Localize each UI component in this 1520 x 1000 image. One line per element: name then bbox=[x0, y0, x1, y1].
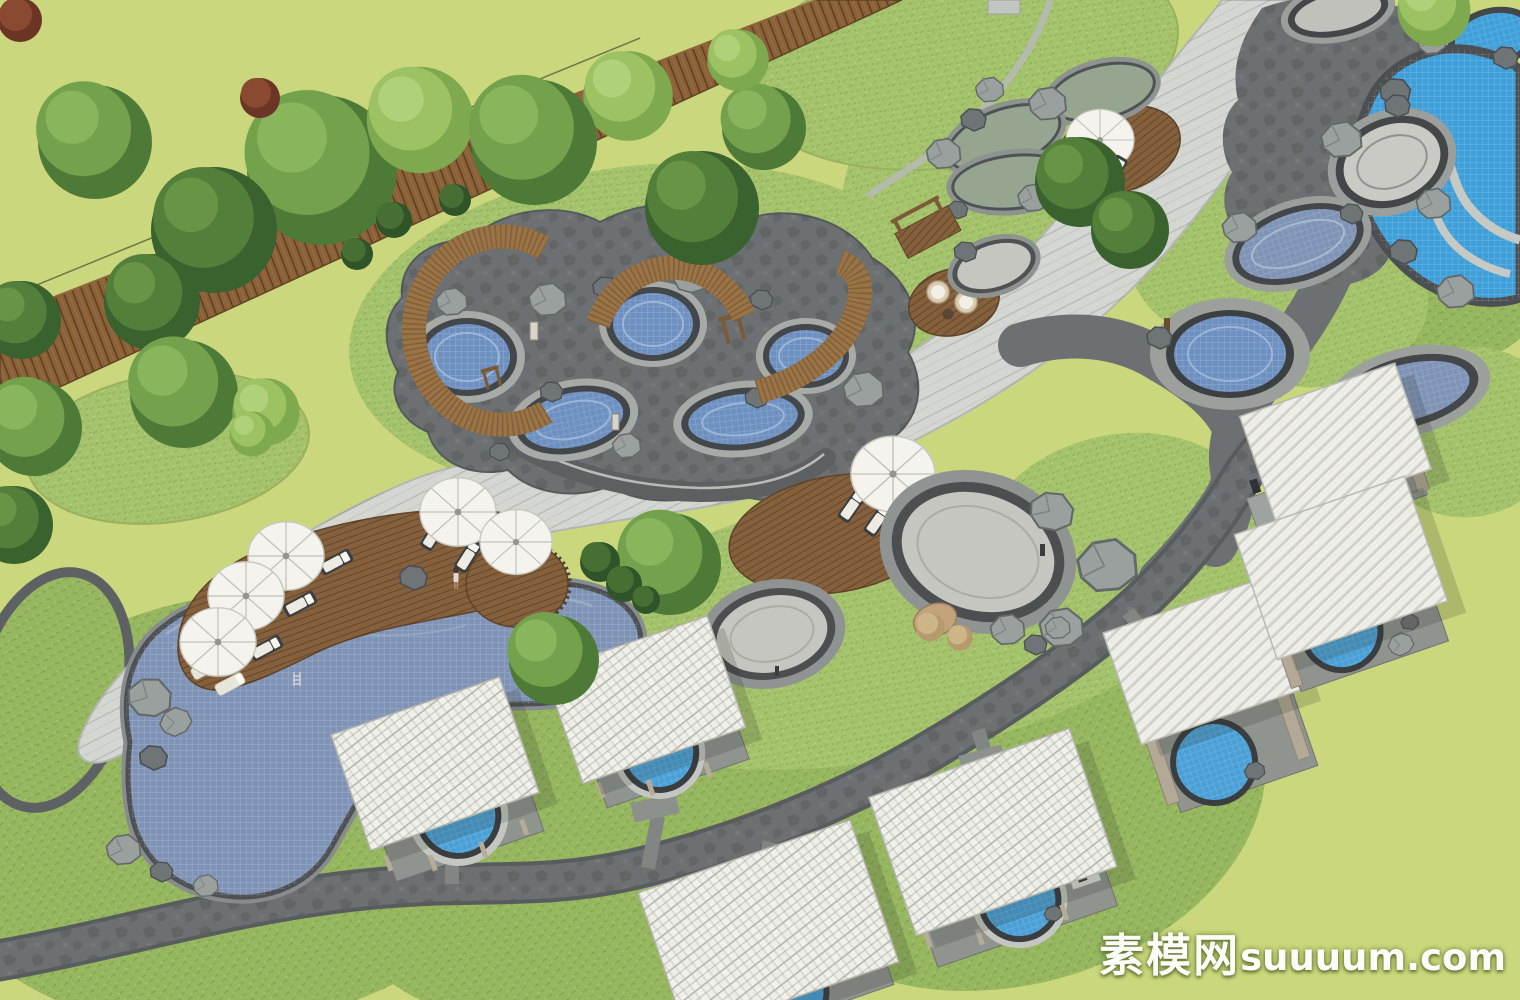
resort-aerial-render bbox=[0, 0, 1520, 1000]
patio-umbrella bbox=[480, 510, 552, 575]
watermark-cn: 素模网 bbox=[1099, 933, 1240, 978]
round-pool bbox=[1150, 298, 1310, 410]
lamp-post bbox=[1040, 544, 1045, 556]
tree bbox=[1091, 191, 1169, 269]
shrub bbox=[230, 412, 275, 457]
shrub bbox=[376, 202, 412, 238]
lamp-post bbox=[775, 666, 779, 676]
dry-shrub bbox=[916, 613, 945, 642]
tree bbox=[645, 151, 759, 265]
platform-pad bbox=[988, 0, 1020, 14]
shrub bbox=[341, 238, 373, 270]
shrub bbox=[439, 184, 471, 216]
screenshot-root: 素模网suuuum.com bbox=[0, 0, 1520, 1000]
watermark: 素模网suuuum.com bbox=[1099, 933, 1506, 978]
tree bbox=[707, 29, 769, 91]
lamp-post bbox=[530, 322, 538, 340]
red-shrub bbox=[240, 78, 280, 118]
tree bbox=[583, 51, 673, 141]
lamp-post bbox=[612, 414, 619, 430]
tree bbox=[104, 254, 200, 350]
tree bbox=[367, 67, 473, 173]
watermark-latin: suuuum.com bbox=[1240, 939, 1506, 978]
patio-umbrella bbox=[180, 608, 256, 676]
dry-shrub bbox=[947, 625, 973, 651]
shrub bbox=[632, 586, 660, 614]
